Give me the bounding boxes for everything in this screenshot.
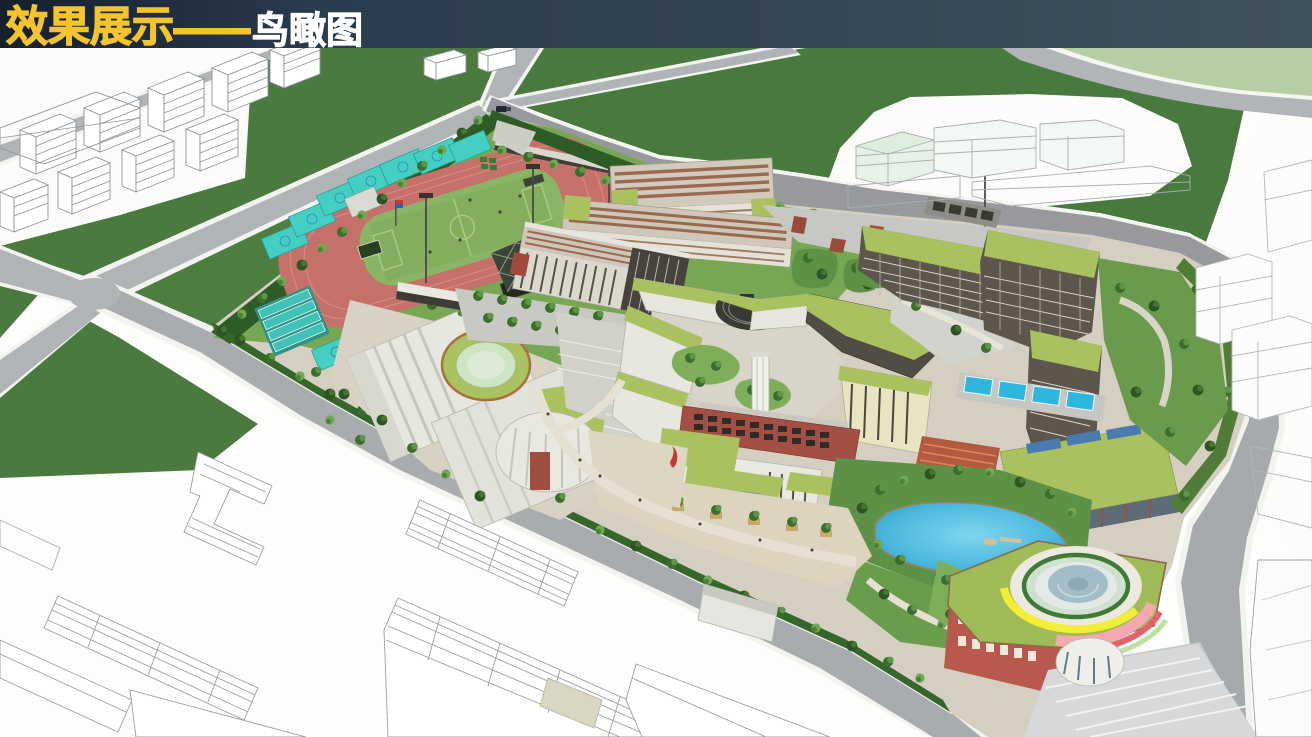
- svg-text:鸟瞰图: 鸟瞰图: [252, 10, 363, 51]
- svg-text:效果展示: 效果展示: [6, 3, 174, 50]
